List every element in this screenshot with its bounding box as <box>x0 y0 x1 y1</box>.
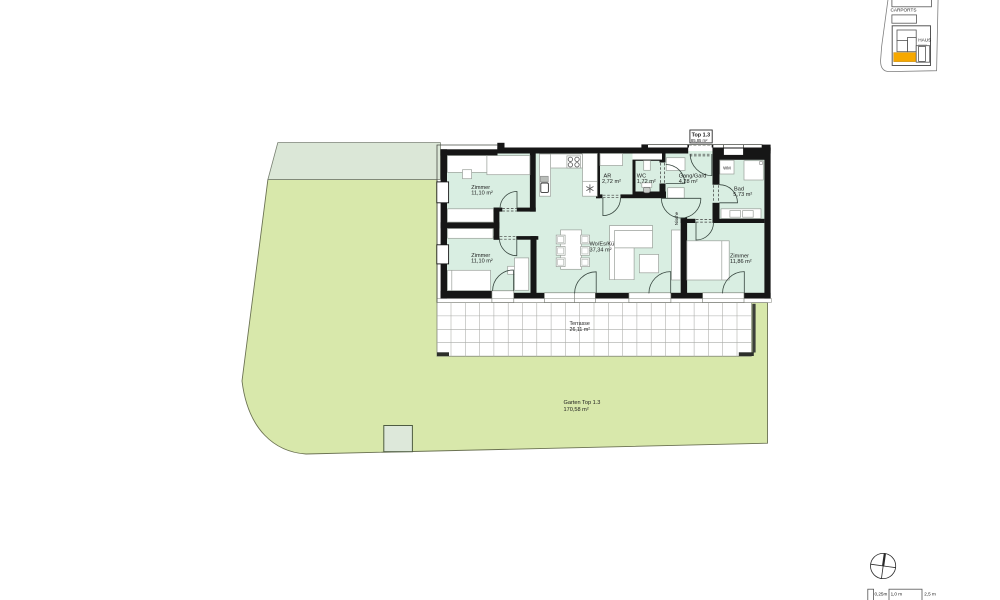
svg-text:170,58 m²: 170,58 m² <box>564 407 589 413</box>
svg-text:37,34 m²: 37,34 m² <box>590 248 612 254</box>
svg-text:85,85 m²: 85,85 m² <box>691 138 708 143</box>
svg-text:11,10 m²: 11,10 m² <box>471 259 493 265</box>
svg-text:2,5 m: 2,5 m <box>924 592 936 597</box>
svg-text:26,11 m²: 26,11 m² <box>570 327 591 333</box>
svg-text:0,25m: 0,25m <box>875 592 888 597</box>
svg-text:Nische: Nische <box>674 211 679 225</box>
svg-text:Terrasse: Terrasse <box>570 321 590 327</box>
svg-text:Garten Top 1.3: Garten Top 1.3 <box>564 400 601 406</box>
svg-text:CARPORTS: CARPORTS <box>891 8 917 13</box>
svg-text:11,86 m²: 11,86 m² <box>730 259 752 265</box>
svg-text:1,72 m²: 1,72 m² <box>637 179 656 185</box>
svg-text:2,72 m²: 2,72 m² <box>602 179 621 185</box>
svg-text:Wo/Es/Kü: Wo/Es/Kü <box>590 242 615 248</box>
svg-text:WM: WM <box>723 165 731 170</box>
svg-text:11,10 m²: 11,10 m² <box>471 191 493 197</box>
svg-text:5,73 m²: 5,73 m² <box>733 192 752 198</box>
svg-text:4,28 m²: 4,28 m² <box>679 179 698 185</box>
svg-text:HAUS: HAUS <box>918 38 931 43</box>
svg-text:1,0 m: 1,0 m <box>891 592 903 597</box>
